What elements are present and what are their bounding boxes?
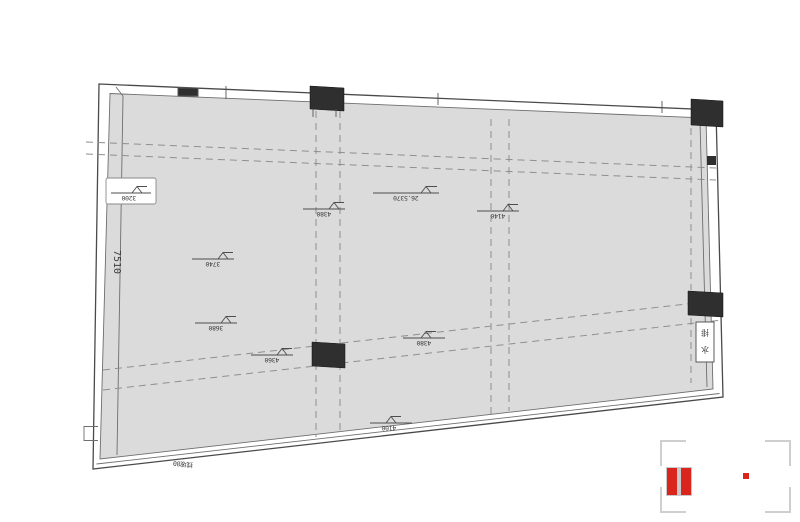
marker-label: 26.5370	[393, 194, 419, 202]
marker-label: 4140	[490, 212, 505, 220]
watermark	[661, 441, 790, 512]
column-bottom-center	[312, 342, 345, 368]
shaft-box: 排 水	[696, 322, 714, 362]
marker-label: 3740	[205, 260, 220, 268]
elevation-marker-boxed: 3200	[106, 178, 156, 204]
top-wall-tag	[178, 88, 198, 96]
logo-bar-left	[667, 468, 677, 495]
shaft-label-top: 排	[701, 328, 709, 338]
shaft-label-bottom: 水	[701, 345, 709, 355]
slope-note: 找坡80	[172, 459, 193, 470]
marker-label: 4360	[264, 356, 279, 364]
shaft-box-outline	[696, 322, 714, 362]
column-top-center	[310, 86, 344, 111]
marker-label: 4380	[316, 210, 331, 218]
column-top-right	[691, 99, 723, 127]
left-dimension-label: 7510	[111, 250, 122, 274]
marker-label: 3200	[121, 194, 136, 202]
logo-bars	[666, 467, 692, 496]
column-right-middle	[688, 291, 723, 317]
right-wall-tag	[707, 156, 716, 165]
logo-bar-right	[681, 468, 691, 495]
marker-label: 3680	[208, 324, 223, 332]
floorplan-canvas: 3200 3740 3680 4380 26.5370 4140 4360 43…	[0, 0, 800, 522]
marker-label: 4380	[416, 339, 431, 347]
marker-label: 4100	[381, 424, 396, 432]
logo-dot	[743, 473, 749, 479]
